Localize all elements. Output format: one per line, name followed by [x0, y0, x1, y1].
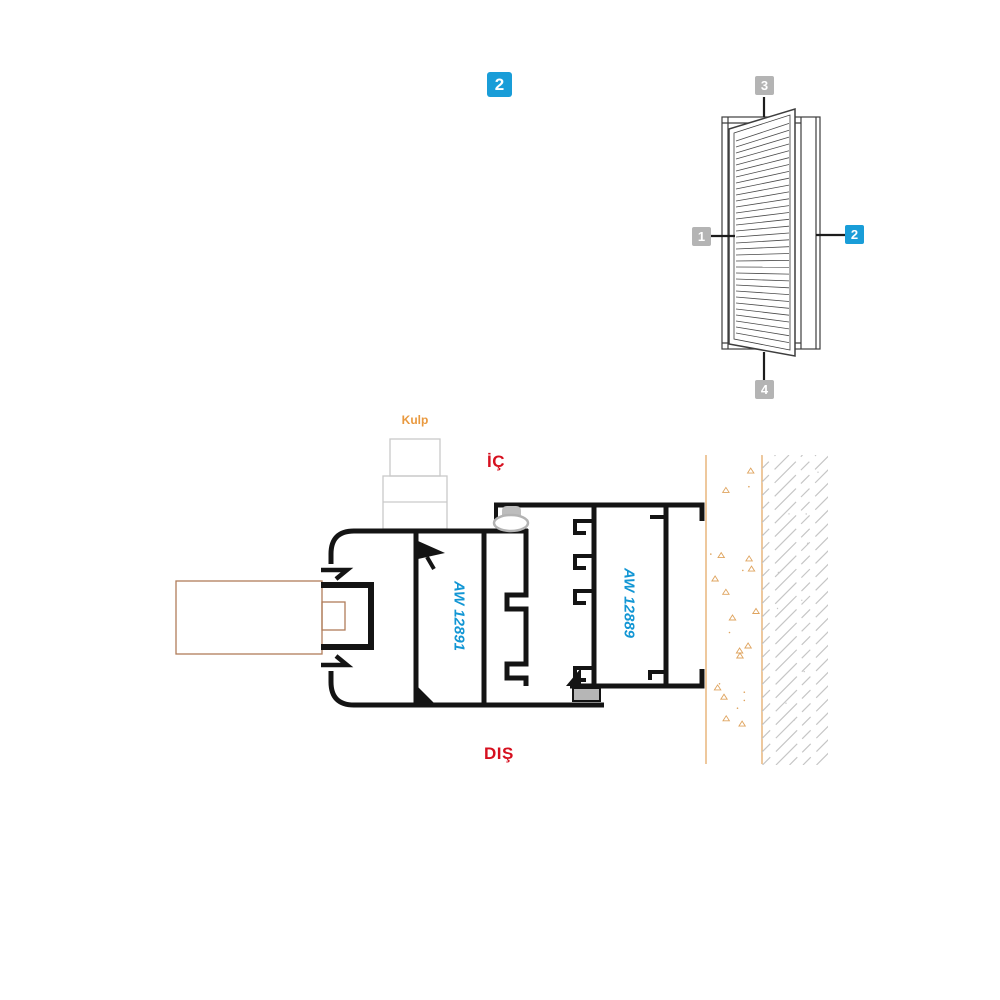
frame-left-wall — [507, 529, 526, 686]
gasket — [494, 506, 528, 531]
callout-4: 4 — [755, 380, 774, 399]
gasket-bulb — [494, 515, 528, 531]
callout-1: 1 — [692, 227, 711, 246]
interior-label: İÇ — [487, 452, 505, 472]
sash-hook-bottom — [321, 656, 347, 665]
page-number-badge: 2 — [487, 72, 512, 97]
louver-blade — [176, 581, 345, 654]
frame-bottom-edge — [570, 669, 702, 686]
plaster-layer — [706, 455, 762, 764]
sash-flag-bottom — [418, 687, 434, 703]
callout-3: 3 — [755, 76, 774, 95]
exterior-label: DIŞ — [484, 744, 514, 764]
threshold-block — [573, 688, 600, 701]
blade-body — [176, 581, 322, 654]
blade-pocket — [321, 585, 371, 647]
sash-bottom-outline — [331, 671, 604, 705]
callout-2: 2 — [845, 225, 864, 244]
wall-section — [452, 455, 1000, 765]
section-diagram: AW 12891 AW 12889 — [176, 439, 1000, 765]
frame-clip-1 — [575, 521, 594, 533]
profile-aw12889 — [494, 505, 702, 686]
technical-drawing: AW 12891 AW 12889 — [0, 0, 1000, 1000]
handle-grip — [390, 439, 440, 476]
sash-hook-top — [321, 570, 347, 579]
blade-tongue — [322, 602, 345, 630]
sash-flag-tail — [427, 557, 434, 569]
profile-codes: AW 12891 AW 12889 — [451, 567, 638, 651]
elevation-diagram — [711, 97, 845, 380]
handle-label: Kulp — [383, 413, 447, 427]
masonry-hatch — [452, 455, 1000, 765]
sash-profile-code: AW 12891 — [451, 580, 468, 651]
catalog-page: AW 12891 AW 12889 2 3 1 2 4 Kulp İÇ DIŞ — [0, 0, 1000, 1000]
louver-panel — [729, 109, 795, 356]
frame-profile-code: AW 12889 — [621, 567, 638, 639]
stucco-marks — [710, 468, 759, 726]
handle-outline — [383, 439, 447, 529]
sash-flag-top — [418, 541, 445, 559]
frame-clip-2 — [575, 556, 594, 568]
frame-clip-3 — [575, 591, 594, 603]
